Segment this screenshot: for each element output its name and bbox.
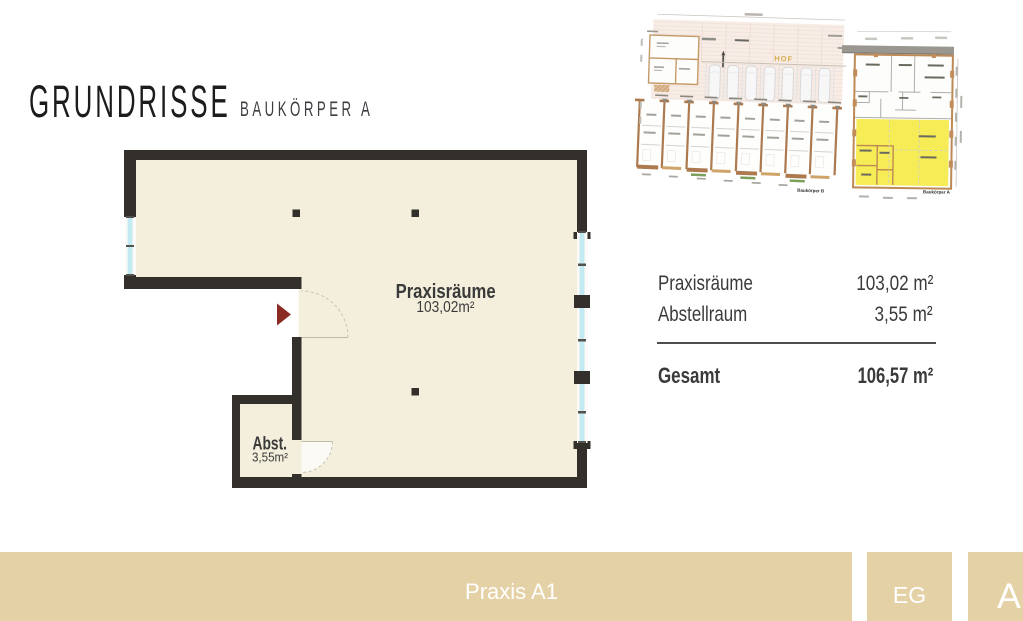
svg-text:Baukörper A: Baukörper A [923,189,951,194]
svg-text:3,55m²: 3,55m² [252,451,288,465]
svg-text:HOF: HOF [774,54,793,64]
svg-text:Baukörper B: Baukörper B [797,188,825,194]
svg-text:103,02m²: 103,02m² [416,299,474,316]
